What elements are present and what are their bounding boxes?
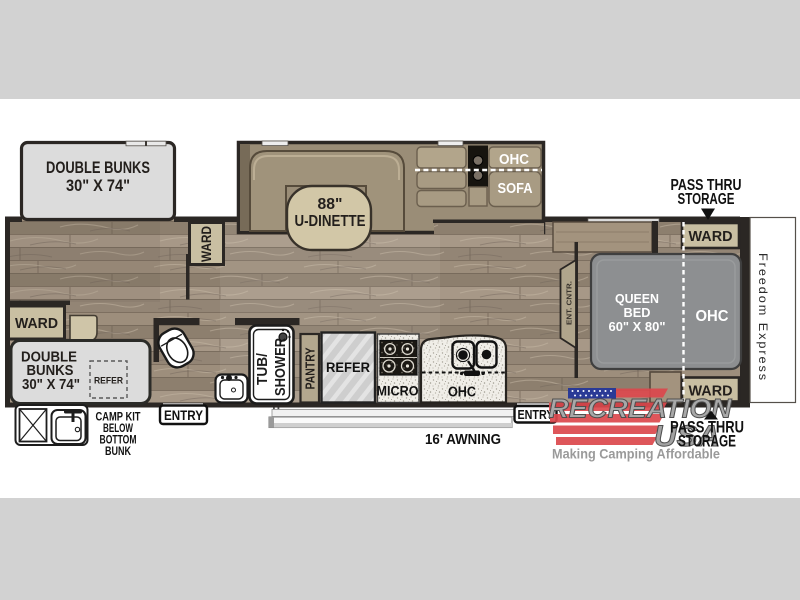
svg-text:88": 88" (318, 196, 343, 213)
svg-text:BED: BED (624, 305, 651, 320)
svg-text:OHC: OHC (696, 308, 729, 325)
svg-text:CAMP KIT: CAMP KIT (96, 412, 141, 424)
svg-text:REFER: REFER (326, 360, 370, 375)
svg-text:BELOW: BELOW (103, 423, 133, 435)
svg-text:REFER: REFER (94, 376, 123, 387)
svg-text:SHOWER: SHOWER (272, 338, 289, 396)
svg-text:30" X 74": 30" X 74" (66, 176, 130, 195)
svg-text:DOUBLE BUNKS: DOUBLE BUNKS (46, 158, 150, 177)
svg-text:OHC: OHC (499, 152, 529, 168)
svg-text:MICRO: MICRO (377, 383, 419, 399)
svg-text:60" X 80": 60" X 80" (609, 319, 666, 334)
svg-text:TUB/: TUB/ (254, 352, 271, 385)
svg-text:BOTTOM: BOTTOM (100, 435, 137, 447)
svg-text:QUEEN: QUEEN (615, 291, 659, 306)
svg-text:OHC: OHC (448, 385, 476, 401)
svg-text:ENT. CNTR.: ENT. CNTR. (565, 281, 574, 325)
svg-text:WARD: WARD (15, 316, 58, 332)
svg-text:WARD: WARD (199, 226, 214, 262)
svg-text:16' AWNING: 16' AWNING (425, 431, 501, 448)
svg-text:WARD: WARD (689, 229, 733, 245)
svg-text:30" X 74": 30" X 74" (22, 377, 80, 393)
svg-text:Making Camping Affordable: Making Camping Affordable (552, 447, 720, 462)
svg-text:PANTRY: PANTRY (304, 347, 318, 390)
svg-text:Freedom Express: Freedom Express (756, 253, 770, 382)
svg-text:U-DINETTE: U-DINETTE (295, 213, 366, 230)
svg-text:STORAGE: STORAGE (678, 191, 735, 208)
svg-text:ENTRY: ENTRY (164, 407, 204, 423)
svg-text:BUNK: BUNK (105, 446, 132, 458)
svg-text:SOFA: SOFA (498, 181, 533, 197)
